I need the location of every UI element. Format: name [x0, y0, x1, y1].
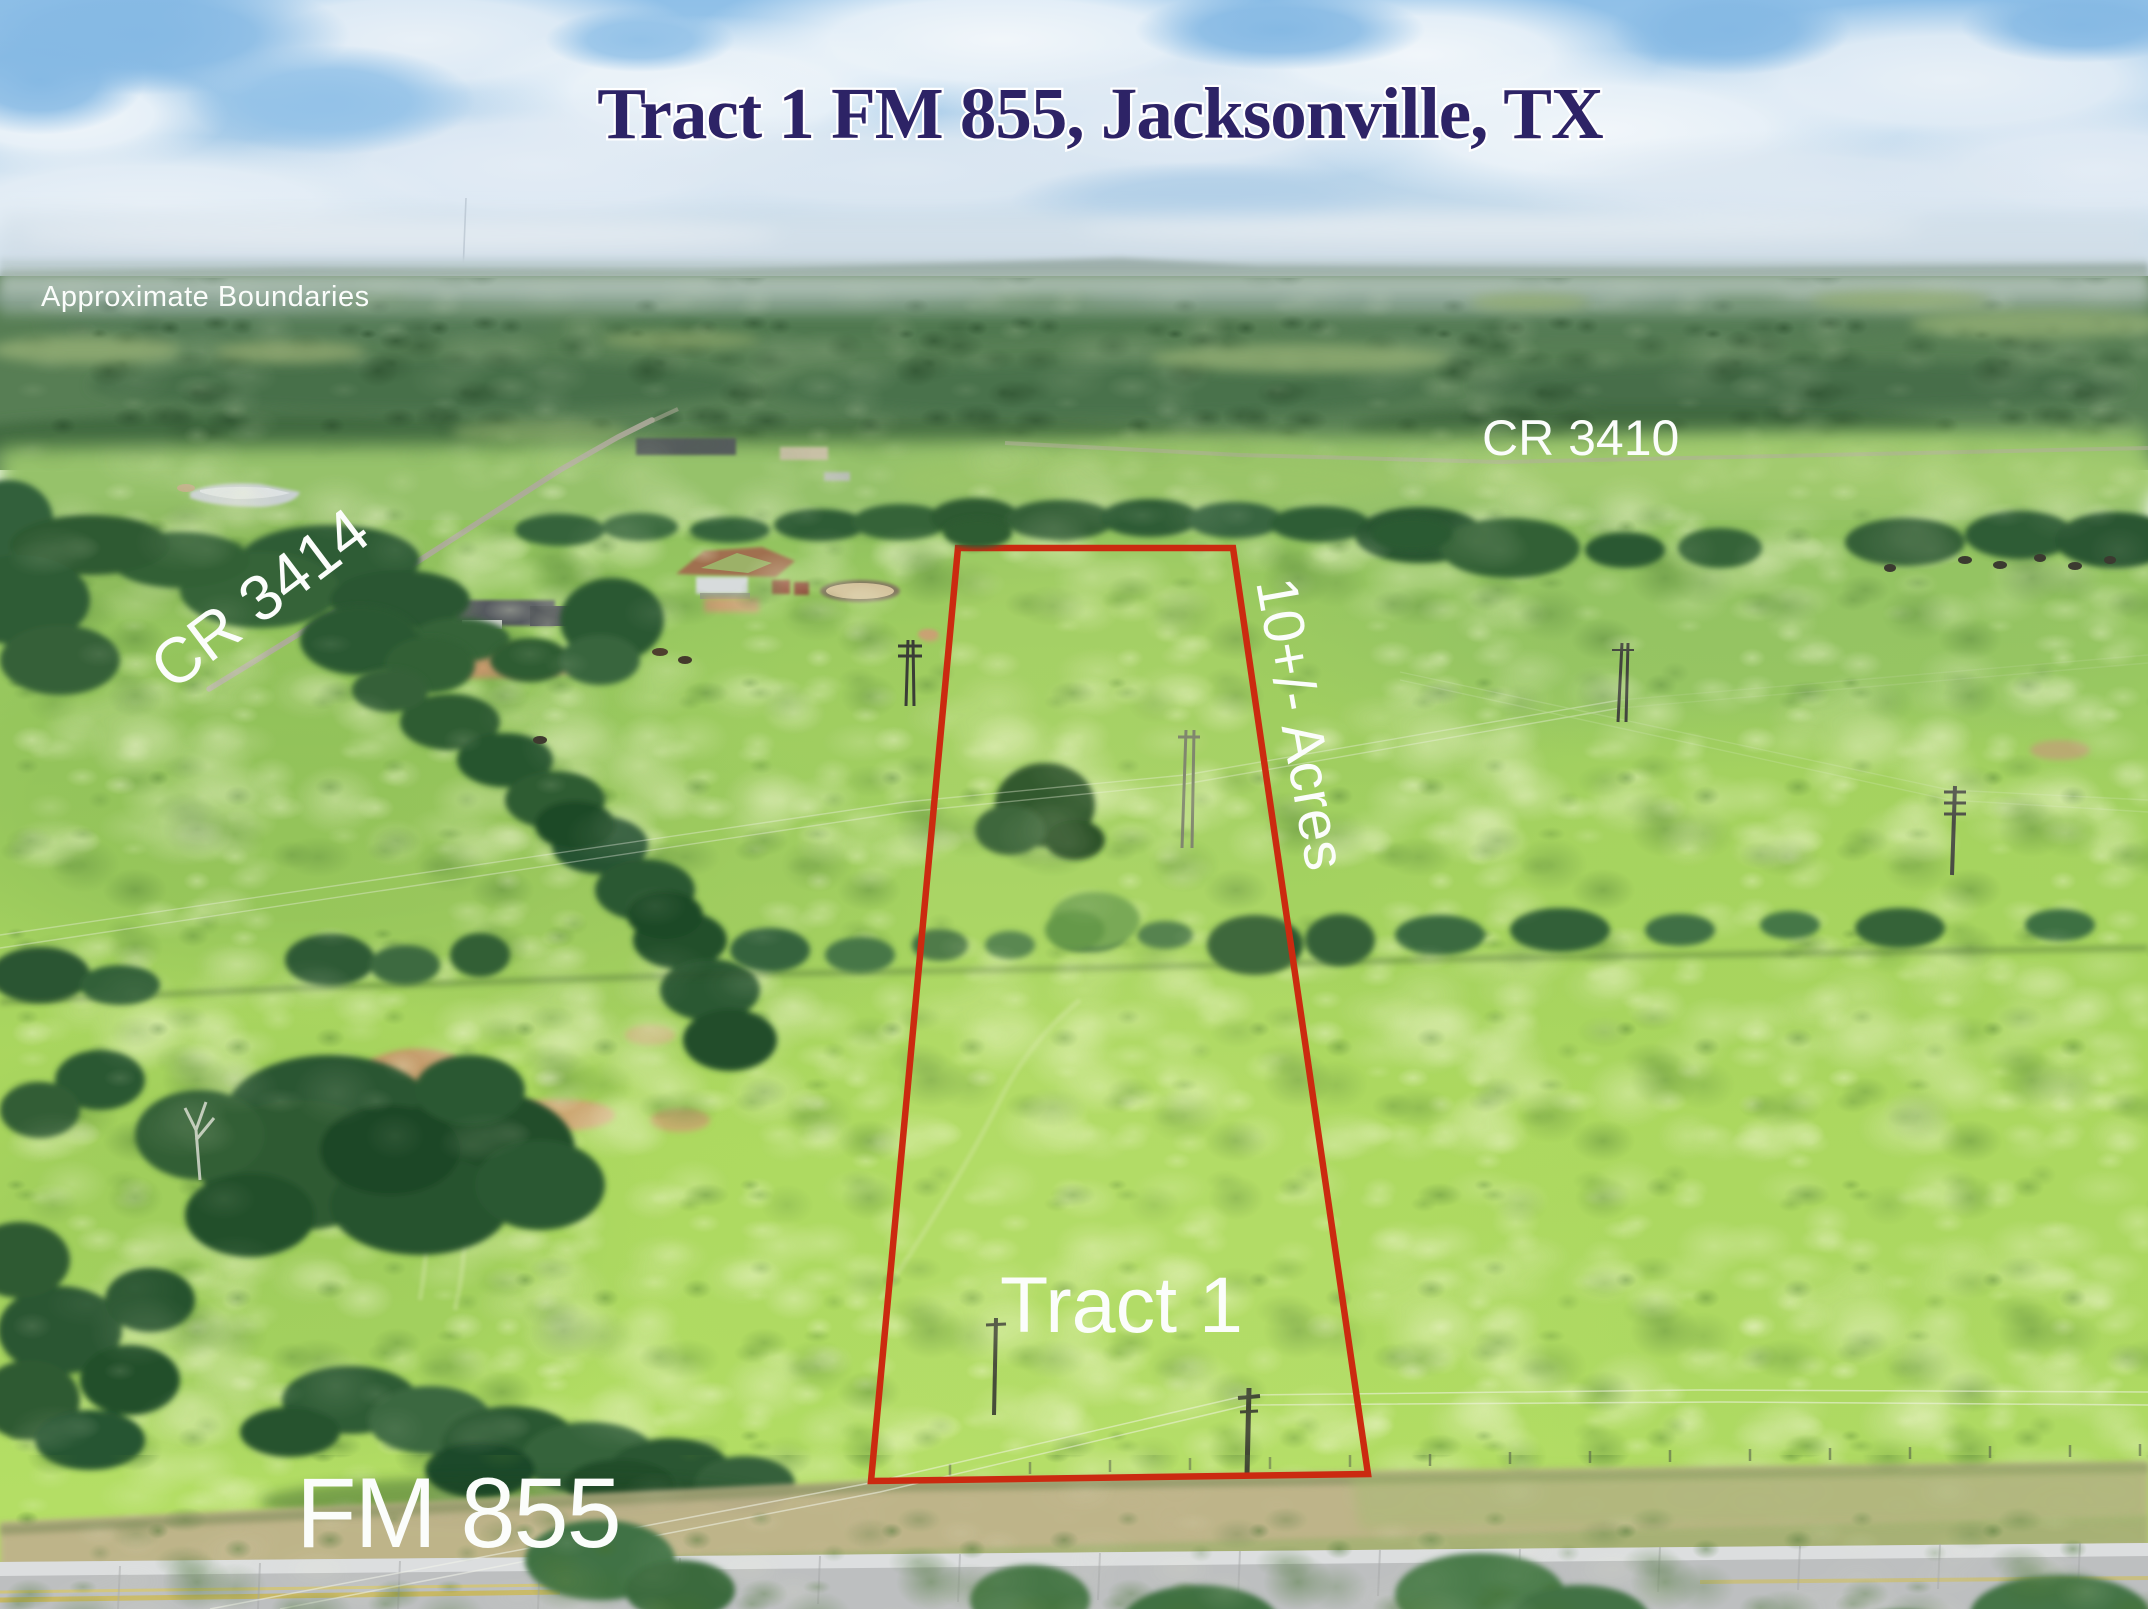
svg-text:CR 3410: CR 3410 [1482, 410, 1679, 466]
svg-text:Tract 1: Tract 1 [1000, 1260, 1243, 1349]
svg-text:FM 855: FM 855 [296, 1457, 620, 1568]
svg-text:Tract 1 FM 855, Jacksonville,: Tract 1 FM 855, Jacksonville, TX [597, 73, 1603, 154]
svg-text:Approximate Boundaries: Approximate Boundaries [41, 281, 370, 313]
